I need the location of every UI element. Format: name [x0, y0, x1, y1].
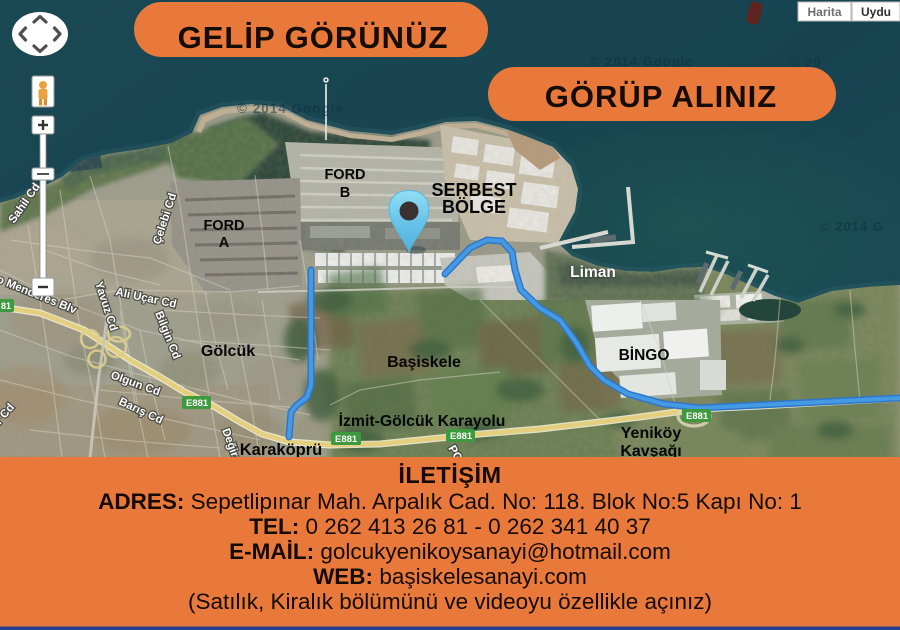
svg-text:GÖRÜP ALINIZ: GÖRÜP ALINIZ — [545, 79, 777, 114]
svg-text:Uydu: Uydu — [861, 5, 891, 19]
svg-text:İzmit-Gölcük Karayolu: İzmit-Gölcük Karayolu — [339, 412, 506, 430]
svg-text:© 2014 Google: © 2014 Google — [590, 54, 694, 69]
svg-text:Yeniköy: Yeniköy — [621, 425, 682, 442]
svg-text:E881: E881 — [450, 431, 473, 442]
svg-text:A: A — [219, 235, 230, 251]
svg-text:Liman: Liman — [570, 264, 616, 281]
svg-text:Başiskele: Başiskele — [387, 354, 461, 371]
svg-text:Harita: Harita — [807, 5, 841, 19]
svg-text:BÖLGE: BÖLGE — [442, 197, 506, 217]
svg-text:E881: E881 — [335, 434, 358, 445]
svg-text:FORD: FORD — [203, 218, 244, 234]
svg-text:E881: E881 — [186, 398, 209, 409]
svg-text:Karaköprü: Karaköprü — [240, 441, 323, 459]
svg-text:FORD: FORD — [324, 167, 365, 183]
svg-text:© 2014 Google: © 2014 Google — [237, 101, 344, 116]
svg-text:Gölcük: Gölcük — [201, 343, 255, 360]
svg-text:GELİP GÖRÜNÜZ: GELİP GÖRÜNÜZ — [178, 20, 449, 55]
svg-text:81: 81 — [1, 301, 11, 311]
svg-text:B: B — [340, 185, 350, 201]
svg-text:E881: E881 — [686, 411, 709, 422]
svg-text:© 2014 G: © 2014 G — [820, 219, 884, 234]
svg-text:BİNGO: BİNGO — [619, 347, 670, 364]
